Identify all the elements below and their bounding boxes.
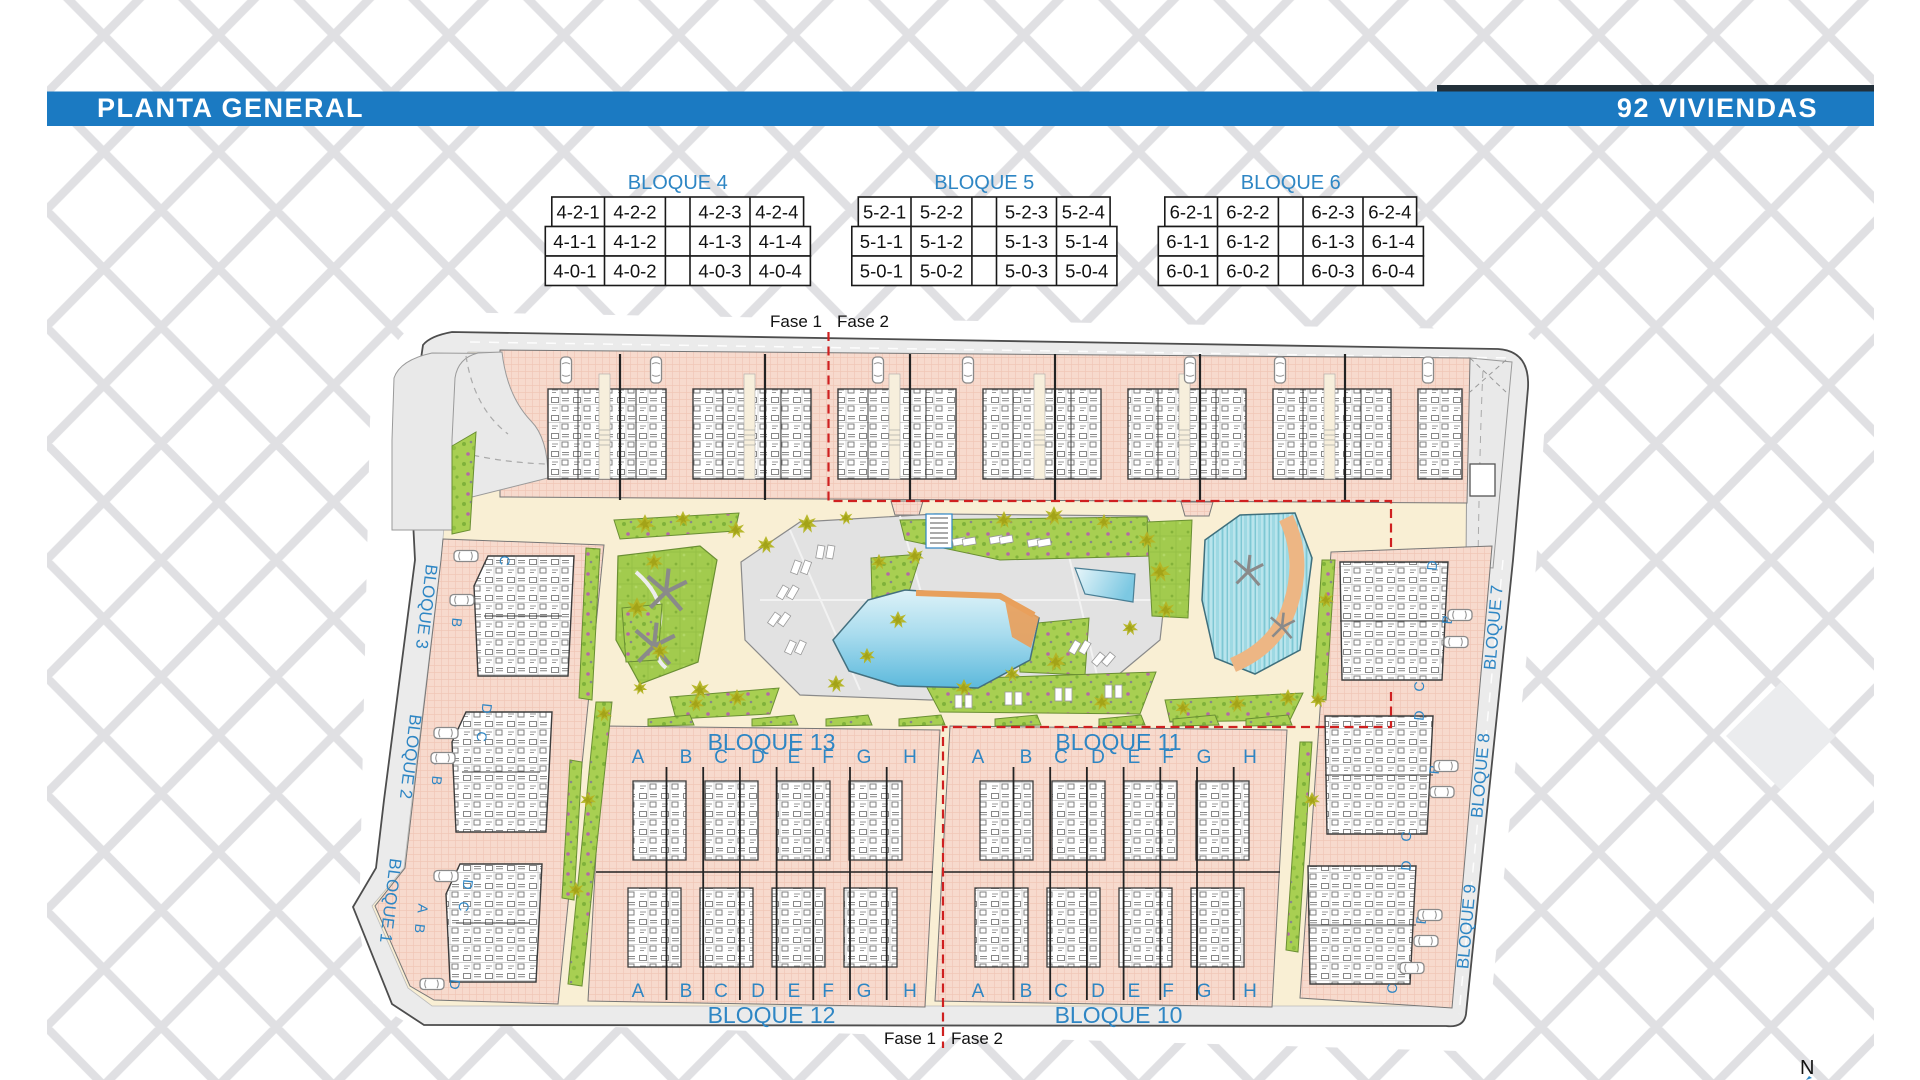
svg-text:5-1-4: 5-1-4 [1065,231,1108,252]
svg-text:C: C [1054,747,1068,768]
svg-text:Fase 1: Fase 1 [884,1029,936,1048]
svg-text:5-0-1: 5-0-1 [860,261,903,282]
svg-text:G: G [857,981,872,1002]
svg-text:F: F [822,981,834,1002]
svg-text:6-0-4: 6-0-4 [1372,261,1415,282]
svg-text:6-0-3: 6-0-3 [1311,261,1354,282]
svg-text:D: D [1398,860,1415,871]
svg-text:5-0-3: 5-0-3 [1005,261,1048,282]
svg-text:D: D [751,981,765,1002]
svg-text:C: C [714,981,728,1002]
svg-text:A: A [632,747,645,768]
svg-text:BLOQUE 12: BLOQUE 12 [708,1002,836,1028]
svg-text:5-0-4: 5-0-4 [1065,261,1108,282]
svg-text:H: H [1243,981,1257,1002]
svg-text:4-1-2: 4-1-2 [613,231,656,252]
svg-text:5-2-4: 5-2-4 [1062,202,1105,223]
svg-text:4-0-2: 4-0-2 [613,261,656,282]
svg-text:5-1-1: 5-1-1 [860,231,903,252]
svg-text:F: F [1162,747,1174,768]
svg-text:C: C [455,901,472,913]
svg-text:4-0-4: 4-0-4 [759,261,802,282]
svg-text:5-0-2: 5-0-2 [920,261,963,282]
svg-text:E: E [1128,747,1141,768]
svg-text:6-2-3: 6-2-3 [1311,202,1354,223]
svg-text:B: B [1020,981,1033,1002]
svg-text:B: B [680,747,693,768]
svg-text:F: F [822,747,834,768]
svg-text:E: E [788,747,801,768]
svg-text:A: A [632,981,645,1002]
svg-text:C: C [473,731,490,743]
svg-text:4-1-3: 4-1-3 [698,231,741,252]
svg-text:BLOQUE 4: BLOQUE 4 [628,172,728,194]
svg-text:A: A [972,981,985,1002]
svg-text:4-0-3: 4-0-3 [698,261,741,282]
svg-text:PLANTA GENERAL: PLANTA GENERAL [97,93,364,123]
svg-text:4-2-1: 4-2-1 [556,202,599,223]
svg-text:B: B [1020,747,1033,768]
svg-text:4-1-1: 4-1-1 [553,231,596,252]
svg-text:92 VIVIENDAS: 92 VIVIENDAS [1617,93,1818,123]
svg-text:4-1-4: 4-1-4 [759,231,802,252]
svg-text:B: B [412,923,429,934]
svg-text:4-2-3: 4-2-3 [698,202,741,223]
svg-text:6-1-2: 6-1-2 [1226,231,1269,252]
svg-text:D: D [459,879,476,891]
svg-text:Fase 2: Fase 2 [837,312,889,331]
svg-text:D: D [446,979,463,991]
svg-text:H: H [903,747,917,768]
svg-text:4-2-4: 4-2-4 [755,202,798,223]
svg-text:C: C [1411,681,1428,692]
svg-text:6-1-4: 6-1-4 [1372,231,1415,252]
svg-text:G: G [857,747,872,768]
svg-text:D: D [1424,560,1441,571]
svg-text:C: C [1398,831,1415,842]
svg-text:B: B [449,617,466,628]
svg-text:H: H [1243,747,1257,768]
svg-text:B: B [429,775,446,786]
svg-text:6-0-2: 6-0-2 [1226,261,1269,282]
svg-text:Fase 2: Fase 2 [951,1029,1003,1048]
svg-text:N: N [1800,1057,1814,1079]
svg-text:A: A [972,747,985,768]
svg-text:C: C [714,747,728,768]
svg-text:6-2-4: 6-2-4 [1368,202,1411,223]
svg-text:E: E [1128,981,1141,1002]
svg-text:5-2-2: 5-2-2 [920,202,963,223]
svg-text:D: D [751,747,765,768]
svg-text:BLOQUE 6: BLOQUE 6 [1241,172,1341,194]
svg-text:D: D [1091,981,1105,1002]
svg-text:F: F [1162,981,1174,1002]
svg-text:C: C [496,555,513,567]
svg-text:BLOQUE 5: BLOQUE 5 [934,172,1034,194]
svg-text:6-2-1: 6-2-1 [1170,202,1213,223]
svg-text:D: D [478,703,495,715]
svg-text:C: C [1384,983,1401,994]
svg-text:4-0-1: 4-0-1 [553,261,596,282]
svg-text:D: D [1091,747,1105,768]
svg-text:6-2-2: 6-2-2 [1226,202,1269,223]
svg-text:C: C [1054,981,1068,1002]
svg-text:Fase 1: Fase 1 [770,312,822,331]
svg-text:G: G [1197,747,1212,768]
svg-text:E: E [788,981,801,1002]
svg-text:B: B [680,981,693,1002]
svg-text:D: D [1411,710,1428,721]
svg-text:5-2-3: 5-2-3 [1005,202,1048,223]
svg-text:6-1-1: 6-1-1 [1166,231,1209,252]
svg-text:6-0-1: 6-0-1 [1166,261,1209,282]
svg-text:5-1-3: 5-1-3 [1005,231,1048,252]
svg-text:4-2-2: 4-2-2 [613,202,656,223]
svg-text:5-2-1: 5-2-1 [863,202,906,223]
svg-text:5-1-2: 5-1-2 [920,231,963,252]
svg-text:H: H [903,981,917,1002]
svg-text:BLOQUE 10: BLOQUE 10 [1055,1002,1183,1028]
svg-text:G: G [1197,981,1212,1002]
svg-text:6-1-3: 6-1-3 [1311,231,1354,252]
